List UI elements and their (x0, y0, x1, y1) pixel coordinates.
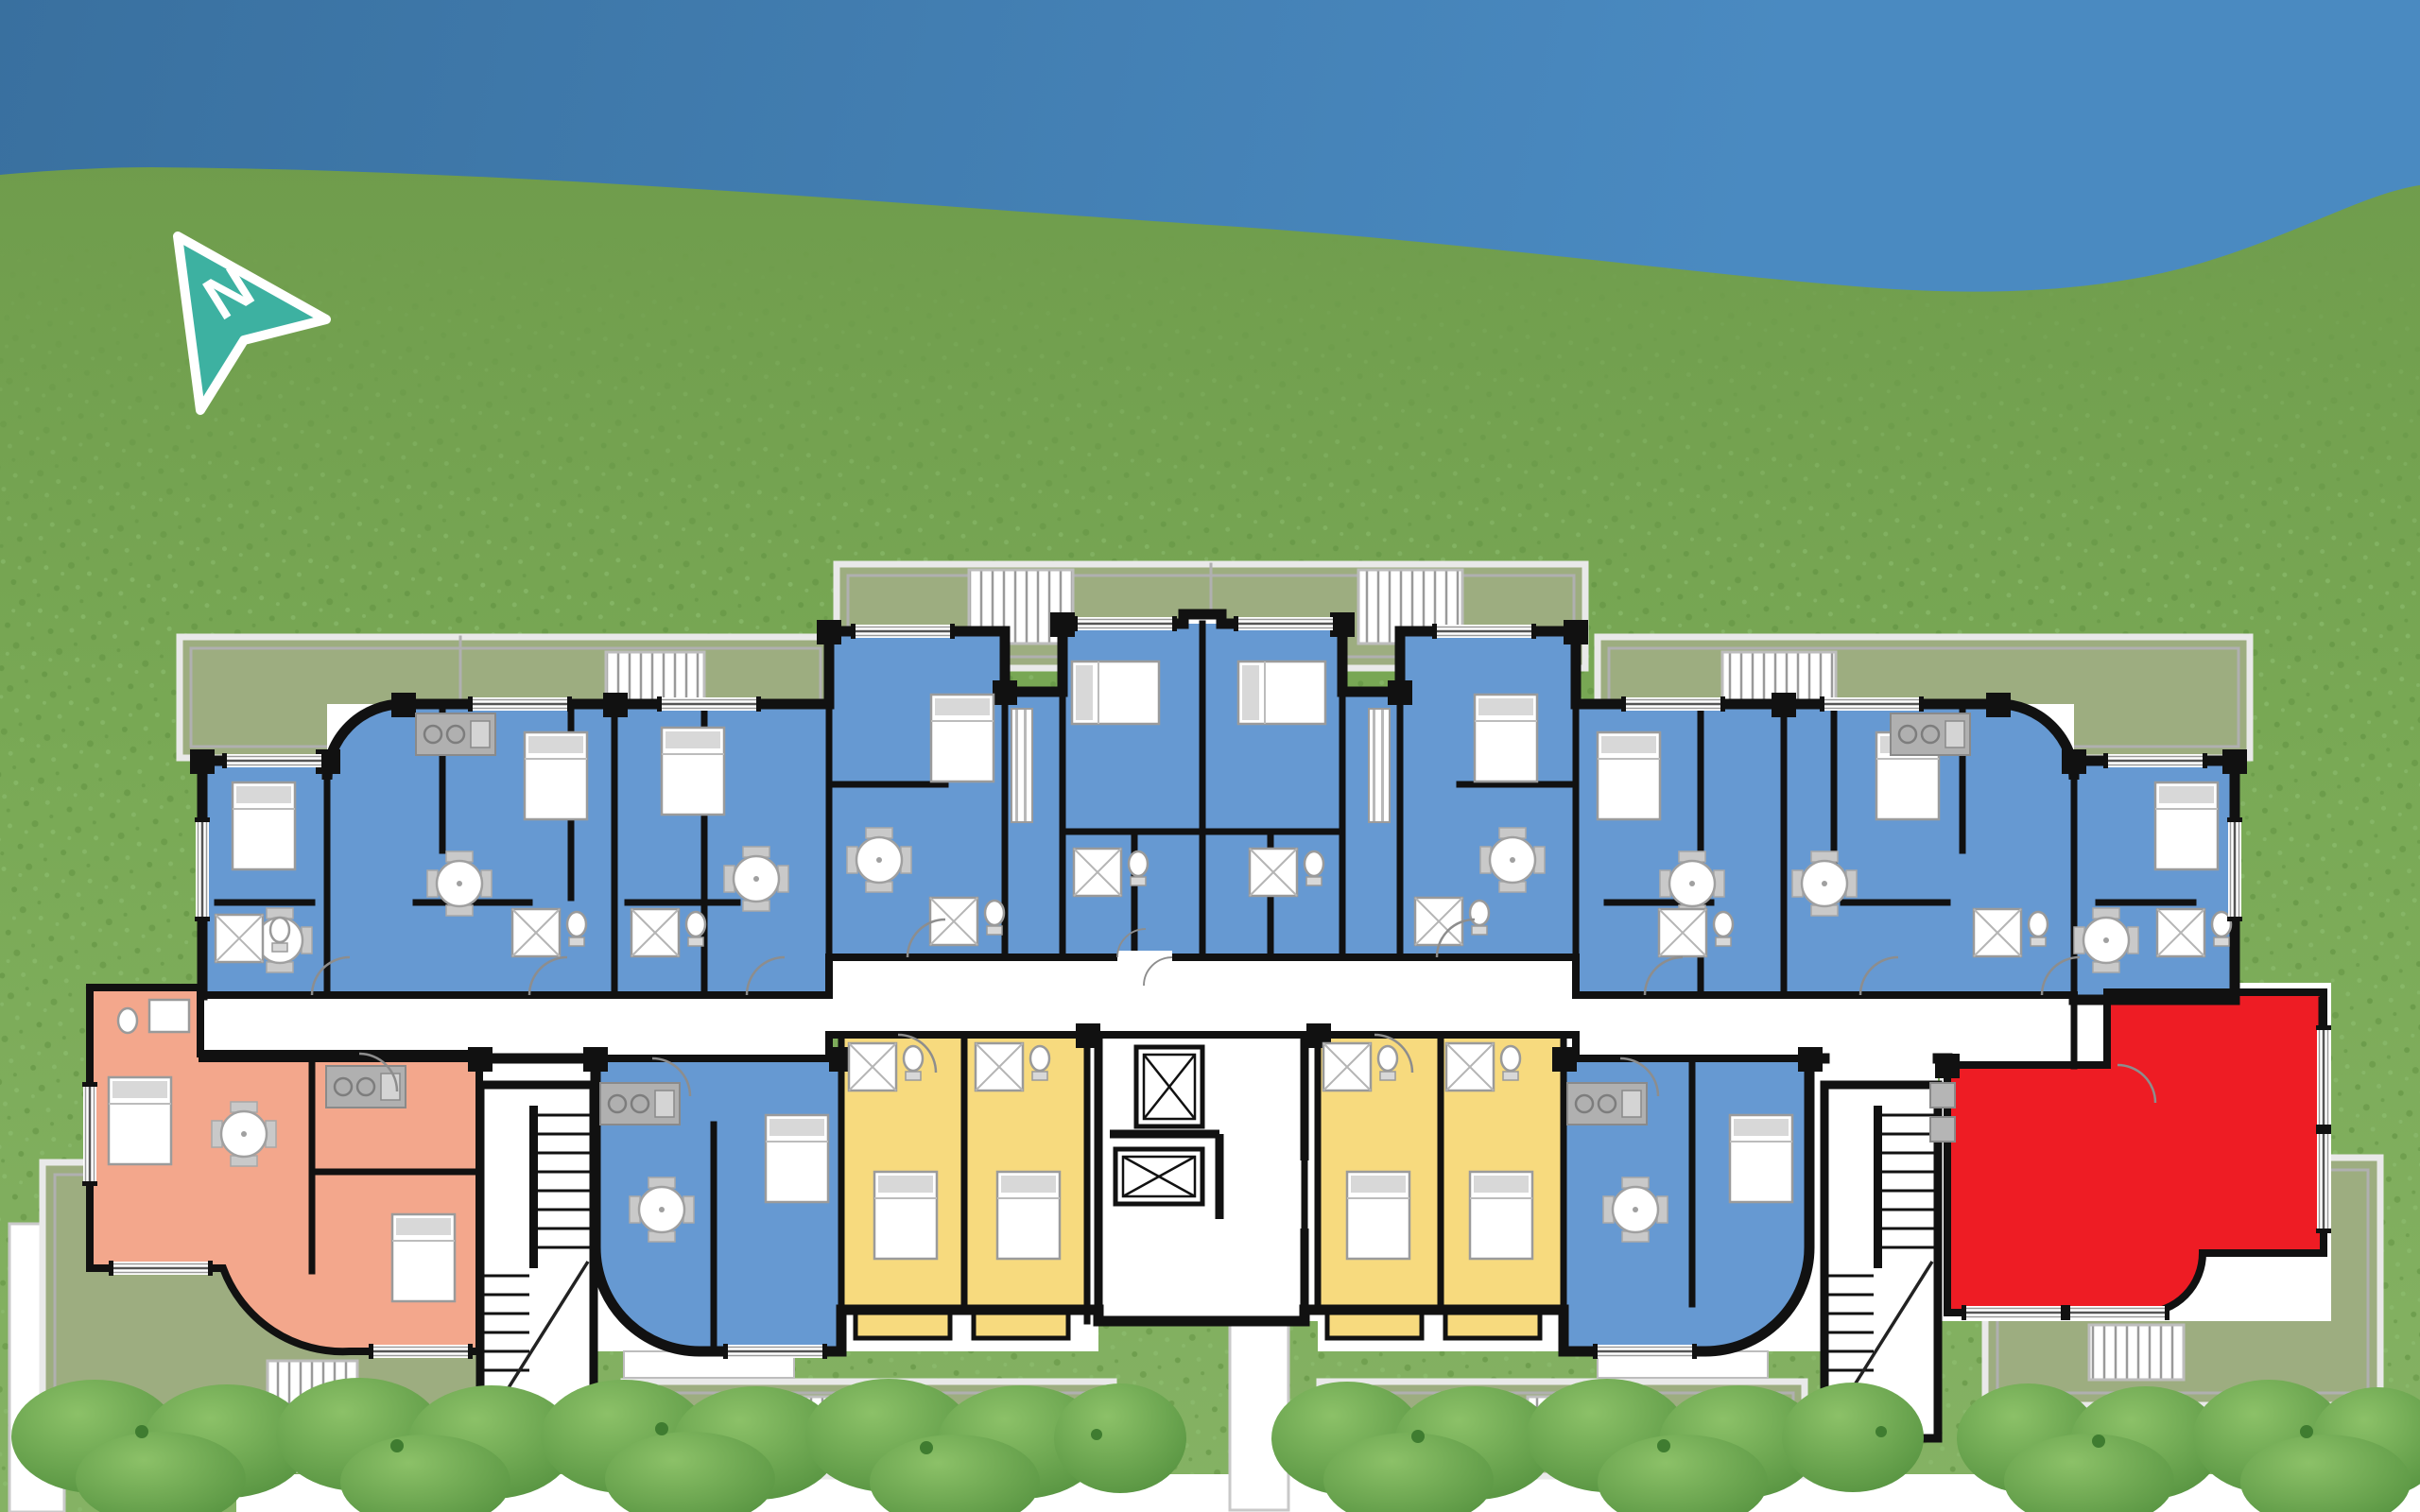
window-icon (723, 1344, 827, 1359)
wardrobe-icon (1011, 709, 1032, 822)
bed-icon (1470, 1172, 1532, 1259)
bed-icon (1072, 661, 1159, 724)
stair-stringer (529, 1106, 538, 1268)
stairwell-left (480, 1085, 594, 1438)
window-icon (2316, 1025, 2331, 1129)
site-plan-canvas: N (0, 0, 2420, 1512)
laundry-icon (1930, 1083, 1955, 1108)
window-icon (468, 696, 572, 712)
window-icon (851, 624, 955, 639)
window-icon (1073, 616, 1177, 631)
window-icon (1621, 696, 1725, 712)
window-icon (222, 753, 326, 768)
building-floor-plan (82, 612, 2331, 1438)
door-gap (1117, 951, 1172, 964)
window-icon (109, 1261, 213, 1276)
window-icon (1820, 696, 1924, 712)
bed-icon (874, 1172, 937, 1259)
window-icon (657, 696, 761, 712)
wardrobe-icon (1369, 709, 1390, 822)
bed-icon (2155, 782, 2218, 869)
kitchen-icon (1567, 1083, 1647, 1125)
bed-icon (233, 782, 295, 869)
bed-icon (392, 1214, 455, 1301)
bed-icon (766, 1115, 828, 1202)
window-icon (1234, 616, 1338, 631)
window-icon (195, 817, 210, 921)
elevator-shaft-icon (1136, 1047, 1202, 1126)
bed-icon (1730, 1115, 1792, 1202)
bed-icon (1475, 695, 1537, 782)
site-plan-stage: N (0, 0, 2420, 1512)
window-icon (2103, 753, 2207, 768)
window-icon (82, 1082, 97, 1186)
elevator-shaft-icon (1115, 1149, 1202, 1204)
bed-icon (1598, 732, 1660, 819)
window-icon (369, 1344, 473, 1359)
bed-icon (1238, 661, 1325, 724)
window-icon (2316, 1129, 2331, 1233)
window-icon (1432, 624, 1536, 639)
vent-grille-icon (2089, 1325, 2184, 1380)
wc-icon (118, 1008, 137, 1033)
bed-icon (931, 695, 994, 782)
window-icon (2227, 817, 2242, 921)
kitchen-icon (600, 1083, 680, 1125)
window-icon (1962, 1305, 2066, 1320)
kitchen-icon (416, 713, 495, 755)
bathtub-icon (149, 1000, 189, 1032)
bed-icon (997, 1172, 1060, 1259)
kitchen-icon (326, 1066, 406, 1108)
laundry-icon (1930, 1117, 1955, 1142)
bed-icon (525, 732, 587, 819)
window-icon (1593, 1344, 1697, 1359)
bed-icon (662, 728, 724, 815)
bed-icon (1347, 1172, 1409, 1259)
window-icon (2066, 1305, 2169, 1320)
bed-icon (109, 1077, 171, 1164)
kitchen-icon (1891, 713, 1970, 755)
stair-stringer (1874, 1106, 1882, 1268)
